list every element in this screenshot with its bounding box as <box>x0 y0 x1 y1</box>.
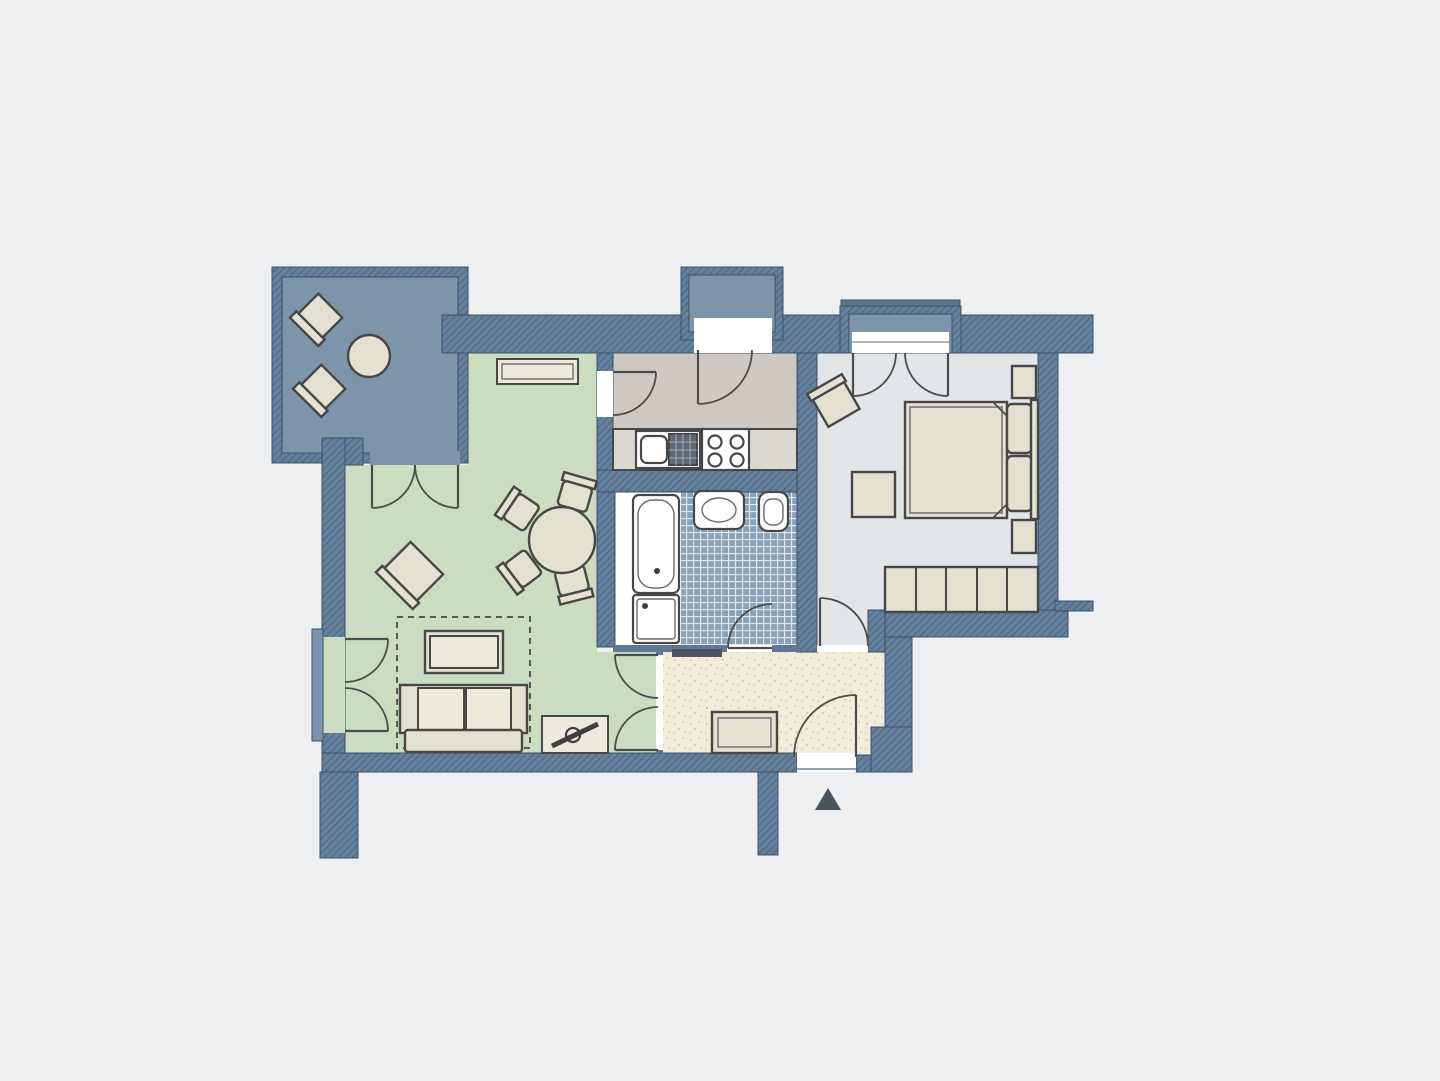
washbasin <box>694 491 744 529</box>
terrace-door-opening <box>322 637 345 733</box>
sofa <box>400 685 527 752</box>
wardrobe <box>885 567 1038 612</box>
bedroom-door-opening <box>817 645 868 652</box>
balcony-door-opening <box>370 451 460 465</box>
pillow <box>1007 404 1032 453</box>
wall-shelf <box>497 359 578 384</box>
dining-table <box>529 507 595 573</box>
bedroom-south-wall <box>868 610 1068 637</box>
stove <box>702 429 749 470</box>
south-mid-wall-stub <box>758 772 778 855</box>
hall-east-wall-step <box>871 727 912 772</box>
nightstand <box>1012 366 1036 398</box>
kitchen-bay-opening <box>694 318 772 353</box>
bathroom-west-wall <box>597 492 615 647</box>
headboard <box>1031 400 1038 519</box>
east-wall-stub <box>1055 601 1093 611</box>
shower-drain <box>642 603 648 609</box>
kitchen-door-opening <box>597 371 613 417</box>
burner <box>731 454 744 467</box>
bathtub-drain <box>654 568 660 574</box>
hall-doormat <box>672 649 722 657</box>
bathroom-south-wall-right <box>772 645 800 652</box>
bedroom-east-wall <box>1038 353 1058 610</box>
south-wall <box>322 753 797 772</box>
coffee-table-top <box>430 636 498 668</box>
burner <box>709 436 722 449</box>
burner <box>709 454 722 467</box>
toilet <box>759 492 788 531</box>
balcony-round-table <box>348 335 390 377</box>
nightstand <box>1012 520 1036 553</box>
pillow <box>1007 456 1032 511</box>
bathtub <box>633 495 679 593</box>
hallway-furniture <box>712 712 777 753</box>
hall-living-door-opening <box>656 655 663 750</box>
tv-sideboard <box>542 716 608 753</box>
bedroom-notch-wall <box>868 610 885 652</box>
terrace-door-sill <box>312 629 323 741</box>
floor-plan-page <box>0 0 1440 1081</box>
kitchen-fixtures <box>613 429 797 470</box>
kitchen-south-wall <box>597 470 817 492</box>
burner <box>731 436 744 449</box>
double-bed <box>905 400 1038 519</box>
bedroom-bench <box>852 472 895 517</box>
sink-basin <box>641 436 667 463</box>
shower <box>633 595 679 643</box>
floor-plan-svg <box>0 0 1440 1081</box>
south-west-wall-stub <box>320 772 358 858</box>
